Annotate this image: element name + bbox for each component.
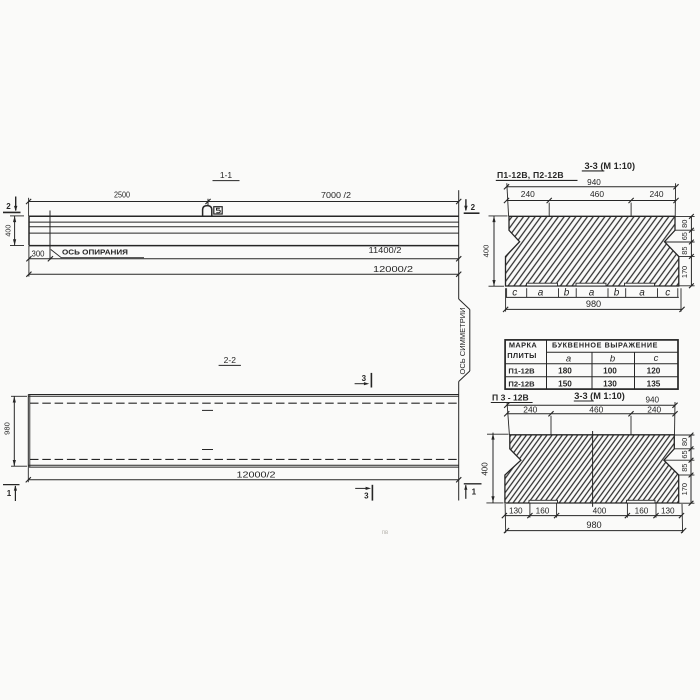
svg-text:2: 2 (6, 202, 11, 211)
svg-text:400: 400 (481, 462, 490, 476)
svg-text:460: 460 (590, 189, 604, 199)
svg-text:a: a (639, 288, 645, 299)
svg-text:П 3 - 12В: П 3 - 12В (492, 392, 529, 402)
svg-text:65: 65 (680, 450, 689, 458)
svg-text:170: 170 (680, 266, 689, 278)
svg-text:ОСЬ ОПИРАНИЯ: ОСЬ ОПИРАНИЯ (62, 250, 128, 257)
svg-text:П1-12В: П1-12В (508, 366, 535, 375)
svg-text:80: 80 (680, 220, 689, 228)
svg-text:120: 120 (647, 366, 661, 375)
svg-text:ПЛИТЫ: ПЛИТЫ (507, 351, 537, 360)
svg-text:85: 85 (680, 464, 689, 472)
svg-text:П1-12В, П2-12В: П1-12В, П2-12В (497, 170, 564, 180)
svg-text:ОСЬ СИММЕТРИИ: ОСЬ СИММЕТРИИ (460, 308, 467, 375)
svg-text:2: 2 (471, 203, 476, 212)
svg-text:130: 130 (603, 379, 617, 388)
svg-text:12000/2: 12000/2 (237, 469, 276, 479)
svg-text:180: 180 (558, 366, 572, 375)
svg-text:b: b (564, 288, 570, 299)
svg-text:a: a (538, 288, 544, 299)
svg-text:c: c (512, 288, 517, 299)
svg-text:240: 240 (647, 405, 661, 415)
svg-text:МАРКА: МАРКА (509, 341, 538, 350)
svg-text:170: 170 (680, 483, 689, 495)
svg-text:3: 3 (362, 374, 367, 383)
svg-text:100: 100 (603, 366, 617, 375)
svg-text:b: b (614, 288, 620, 299)
svg-text:a: a (589, 288, 595, 299)
svg-text:12000/2: 12000/2 (373, 264, 413, 274)
svg-text:БУКВЕННОЕ ВЫРАЖЕНИЕ: БУКВЕННОЕ ВЫРАЖЕНИЕ (552, 340, 658, 349)
svg-text:400: 400 (482, 245, 491, 258)
svg-text:460: 460 (589, 405, 603, 415)
svg-text:1-1: 1-1 (220, 170, 233, 180)
svg-text:7000 /2: 7000 /2 (321, 191, 352, 200)
svg-text:300: 300 (32, 249, 46, 258)
svg-text:130: 130 (509, 506, 523, 515)
svg-text:160: 160 (536, 506, 550, 515)
svg-text:150: 150 (558, 379, 572, 388)
svg-text:940: 940 (587, 178, 601, 187)
svg-text:160: 160 (635, 506, 649, 515)
svg-text:П2-12В: П2-12В (508, 379, 535, 388)
svg-text:1: 1 (7, 489, 12, 498)
svg-text:400: 400 (593, 506, 607, 515)
svg-text:980: 980 (586, 299, 601, 309)
svg-text:240: 240 (521, 189, 535, 199)
svg-text:3-3 (М 1:10): 3-3 (М 1:10) (574, 391, 625, 401)
svg-text:2-2: 2-2 (224, 355, 237, 365)
svg-text:пв: пв (382, 530, 388, 536)
svg-text:940: 940 (645, 395, 659, 404)
svg-text:1: 1 (472, 488, 477, 497)
svg-text:c: c (654, 353, 659, 364)
svg-text:85: 85 (680, 246, 689, 254)
svg-text:980: 980 (586, 520, 601, 530)
svg-text:a: a (566, 353, 571, 364)
svg-text:65: 65 (680, 232, 689, 240)
svg-text:3-3 (М 1:10): 3-3 (М 1:10) (585, 161, 636, 171)
svg-text:400: 400 (3, 225, 12, 237)
svg-text:3: 3 (364, 492, 369, 501)
svg-text:980: 980 (2, 422, 11, 435)
svg-text:240: 240 (650, 189, 664, 199)
svg-text:c: c (665, 288, 670, 299)
svg-text:11400/2: 11400/2 (369, 246, 402, 255)
svg-text:b: b (610, 353, 615, 364)
svg-text:130: 130 (661, 506, 675, 515)
svg-text:135: 135 (647, 379, 661, 388)
svg-text:2500: 2500 (114, 191, 130, 200)
svg-text:80: 80 (680, 438, 689, 446)
svg-text:240: 240 (523, 405, 537, 415)
